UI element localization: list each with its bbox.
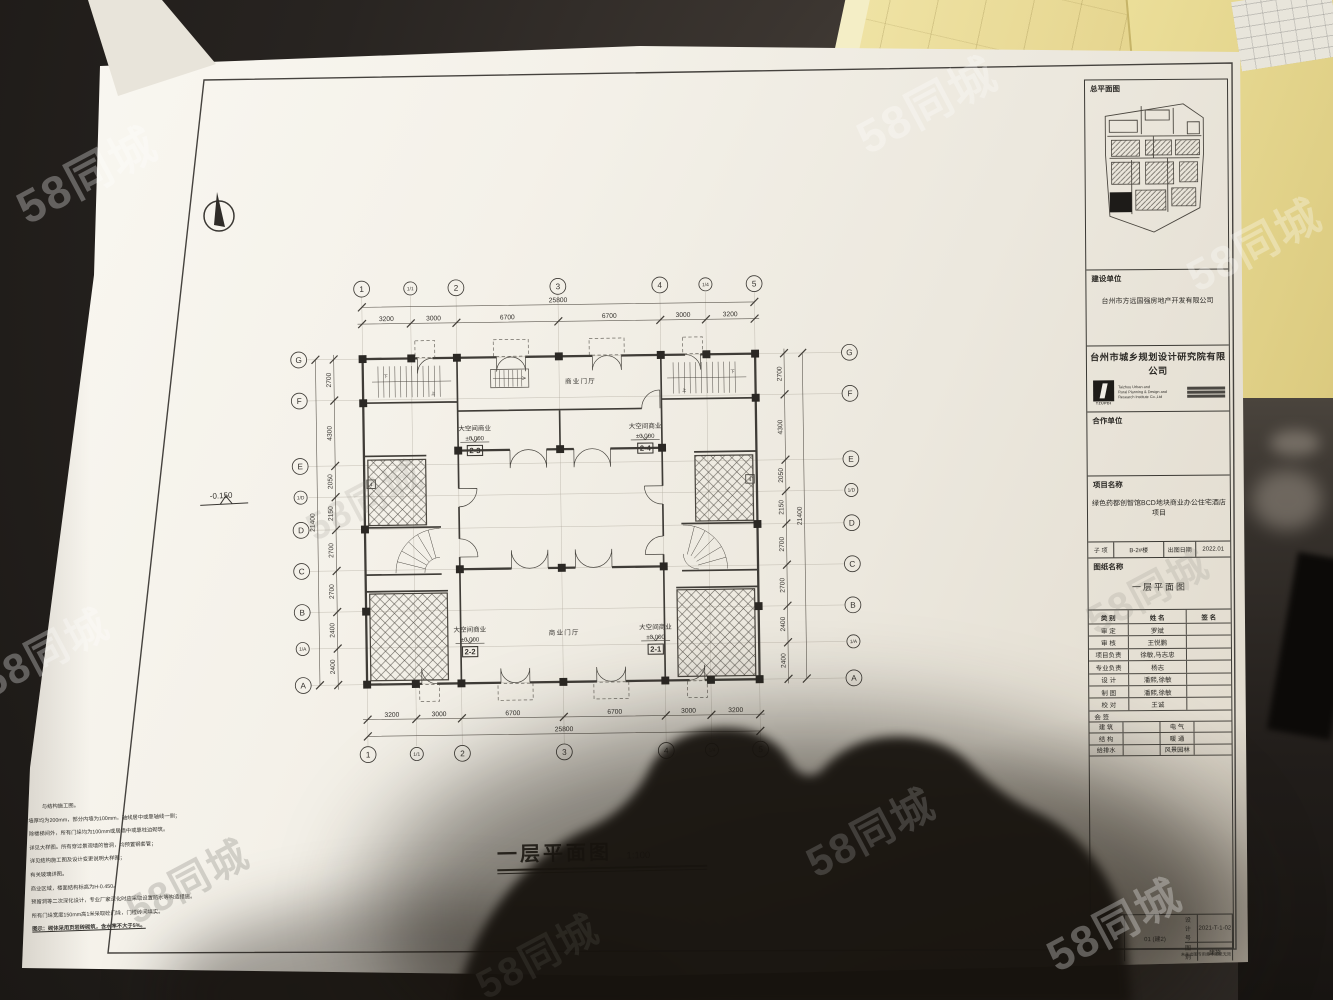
axis-label: 4 bbox=[664, 746, 669, 755]
axis-label: 1/4 bbox=[709, 748, 716, 754]
axis-label: 1 bbox=[366, 750, 371, 759]
north-arrow-icon bbox=[196, 186, 244, 240]
dim-label: 3200 bbox=[728, 707, 743, 714]
shop-label: 大空间商业 bbox=[639, 622, 672, 631]
dim-label: 3000 bbox=[426, 315, 441, 322]
axis-label: F bbox=[297, 397, 302, 406]
axis-label: 1/A bbox=[850, 639, 858, 645]
dim-label: 2700 bbox=[779, 536, 786, 551]
dim-label: 2700 bbox=[776, 366, 783, 381]
dim-label: 2050 bbox=[778, 468, 785, 483]
axis-label: 1/1 bbox=[407, 286, 414, 292]
dim-label: 3000 bbox=[681, 708, 696, 715]
dim-total: 21400 bbox=[797, 506, 804, 525]
date-value: 2022.01 bbox=[1196, 542, 1230, 557]
personnel-row: 制 图潘熙,徐敏 bbox=[1089, 685, 1231, 698]
signature bbox=[1187, 636, 1231, 648]
dim-label: 2400 bbox=[330, 659, 337, 674]
discipline: 给排水 bbox=[1090, 745, 1124, 756]
name: 潘熙,徐敏 bbox=[1129, 686, 1187, 698]
role: 校 对 bbox=[1089, 699, 1129, 711]
dim-total: 25800 bbox=[555, 726, 574, 733]
unit-number: 2-1 bbox=[650, 645, 662, 654]
hall-label: 商业门厅 bbox=[549, 628, 580, 637]
sheet-no-label-bot: 号 bbox=[1104, 938, 1110, 945]
institute-logo-text: TZUPDI bbox=[1093, 401, 1114, 405]
shop-label: 大空间商业 bbox=[453, 625, 486, 634]
project-cell: 项目名称 绿色药都创智馆BCD地块商业办公住宅酒店项目 bbox=[1088, 476, 1230, 543]
drawing-scale: 1:100 bbox=[626, 850, 650, 861]
dim-label: 6700 bbox=[607, 709, 622, 716]
dim-total: 21400 bbox=[310, 513, 317, 532]
subitem-row: 子 项 B-2#楼 出图日期 2022.01 bbox=[1088, 542, 1230, 559]
ground-elevation-marker: -0.150 bbox=[195, 486, 256, 513]
client-name: 台州市方远国强房地产开发有限公司 bbox=[1086, 296, 1228, 307]
dim-label: 3200 bbox=[379, 316, 394, 323]
client-label: 建设单位 bbox=[1086, 270, 1228, 285]
dim-labels-left: 2700 4300 2050 2150 2700 2700 2400 2400 … bbox=[308, 372, 337, 674]
name: 徐敏,马志忠 bbox=[1129, 649, 1187, 661]
floor-plan-drawing: 3200 3000 6700 6700 3000 3200 25800 3200… bbox=[278, 267, 865, 771]
ground-elevation-value: -0.150 bbox=[210, 491, 234, 501]
partner-label: 合作单位 bbox=[1087, 412, 1229, 427]
signature bbox=[1187, 648, 1231, 660]
general-notes: 与结构施工图。 墙厚均为200mm，部分内墙为100mm，轴线居中或靠轴线一侧；… bbox=[28, 794, 245, 937]
site-plan-cell: 总平面图 bbox=[1085, 80, 1228, 271]
axis-label: 4 bbox=[657, 281, 662, 290]
discipline: 建 筑 bbox=[1089, 722, 1123, 733]
drawing-sheet: 3200 3000 6700 6700 3000 3200 25800 3200… bbox=[0, 0, 1333, 1000]
header-category: 类 别 bbox=[1089, 610, 1129, 623]
name: 罗斌 bbox=[1129, 624, 1187, 636]
signature bbox=[1187, 624, 1231, 636]
axis-label: C bbox=[849, 560, 855, 569]
name: 潘熙,徐敏 bbox=[1129, 673, 1187, 685]
personnel-header: 类 别 姓 名 签 名 bbox=[1089, 610, 1231, 625]
personnel-row: 审 定罗斌 bbox=[1089, 624, 1231, 637]
dim-label: 6700 bbox=[602, 313, 617, 320]
site-plan-label: 总平面图 bbox=[1085, 80, 1227, 95]
project-label: 项目名称 bbox=[1088, 476, 1230, 491]
desk-marble-streak bbox=[1270, 430, 1320, 456]
date-label: 出图日期 bbox=[1164, 542, 1196, 557]
signature bbox=[1187, 698, 1231, 710]
name: 杨志 bbox=[1129, 661, 1187, 673]
dim-label: 3200 bbox=[384, 712, 399, 719]
header-name: 姓 名 bbox=[1129, 610, 1187, 623]
institute-logo bbox=[1093, 380, 1114, 401]
dim-label: 4300 bbox=[777, 419, 784, 434]
room-labels: 商业门厅 商业门厅 大空间商业 ±0.000 2-3 大空间商业 ±0.000 … bbox=[450, 375, 673, 657]
role: 设 计 bbox=[1089, 674, 1129, 686]
axis-label: D bbox=[298, 526, 304, 535]
dim-label: 2700 bbox=[326, 372, 333, 387]
dim-label: 6700 bbox=[505, 710, 520, 717]
personnel-row: 项目负责徐敏,马志忠 bbox=[1089, 648, 1231, 661]
design-no-value: 2021-T-1-02 bbox=[1198, 914, 1233, 942]
detail-marker-label: 4 bbox=[748, 477, 751, 483]
axis-label: B bbox=[299, 608, 305, 617]
dim-label: 4300 bbox=[327, 426, 334, 441]
axis-label: 1/D bbox=[297, 495, 305, 501]
axis-label: 1/D bbox=[848, 488, 856, 494]
desk-marble-streak bbox=[1252, 470, 1322, 530]
sheetname-label: 图纸名称 bbox=[1088, 558, 1230, 573]
hall-label: 商业门厅 bbox=[565, 376, 596, 385]
dim-label: 2700 bbox=[329, 584, 336, 599]
discipline-sign bbox=[1195, 744, 1232, 755]
institute-cell: 台州市城乡规划设计研究院有限公司 TZUPDI Taizhou Urban an… bbox=[1087, 346, 1229, 413]
discipline-row: 建 筑电 气 bbox=[1089, 721, 1231, 733]
personnel-table: 类 别 姓 名 签 名 审 定罗斌 审 核王悦鹏 项目负责徐敏,马志忠 专业负责… bbox=[1089, 610, 1232, 757]
sheetname-cell: 图纸名称 一层平面图 bbox=[1088, 558, 1230, 611]
institute-en-line: Research Institute Co.,Ltd bbox=[1118, 395, 1185, 401]
role: 审 核 bbox=[1089, 637, 1129, 649]
axis-label: 1/1 bbox=[413, 752, 420, 758]
signature bbox=[1187, 661, 1231, 673]
axis-label: D bbox=[849, 519, 855, 528]
role: 专业负责 bbox=[1089, 661, 1129, 673]
axis-label: 2 bbox=[460, 749, 465, 758]
axis-label: E bbox=[297, 462, 303, 471]
discipline: 暖 通 bbox=[1161, 733, 1195, 744]
dim-label: 2150 bbox=[328, 506, 335, 521]
personnel-row: 审 核王悦鹏 bbox=[1089, 636, 1231, 649]
partner-cell: 合作单位 bbox=[1087, 412, 1229, 477]
dim-label: 2400 bbox=[780, 616, 787, 631]
axis-label: E bbox=[848, 455, 854, 464]
discipline: 结 构 bbox=[1090, 733, 1124, 744]
role: 审 定 bbox=[1089, 624, 1129, 636]
personnel-row: 专业负责杨志 bbox=[1089, 661, 1231, 674]
stamp-note: 未盖出图专用章本图纸无效 bbox=[1091, 952, 1231, 959]
title-block: 总平面图 建设单位 bbox=[1084, 79, 1234, 950]
dim-label: 3000 bbox=[432, 711, 447, 718]
discipline-row: 给排水风景园林 bbox=[1090, 744, 1232, 756]
site-plan-thumbnail bbox=[1095, 96, 1218, 257]
axis-label: G bbox=[295, 356, 302, 365]
axis-label: F bbox=[847, 389, 852, 398]
dim-label: 2700 bbox=[328, 543, 335, 558]
unit-number: 2-3 bbox=[469, 446, 480, 455]
axis-label: 5 bbox=[758, 745, 763, 754]
stair-direction-labels: 下 上 下 上 bbox=[383, 369, 735, 397]
sheet-no-label-top: 图 bbox=[1104, 931, 1110, 938]
client-cell: 建设单位 台州市方远国强房地产开发有限公司 bbox=[1086, 270, 1229, 347]
unit-number: 2-4 bbox=[640, 444, 652, 453]
role: 项目负责 bbox=[1089, 649, 1129, 661]
stair-down-label: 下 bbox=[730, 369, 735, 375]
design-no-label: 设 计 号 bbox=[1185, 915, 1198, 943]
discipline: 电 气 bbox=[1160, 721, 1194, 732]
drawing-title-text: 一层平面图 bbox=[497, 842, 612, 866]
header-signature: 签 名 bbox=[1187, 610, 1231, 623]
discipline-row: 结 构暖 通 bbox=[1090, 733, 1232, 745]
axis-label: G bbox=[846, 348, 853, 357]
axis-label: C bbox=[299, 567, 305, 576]
drawing-title: 一层平面图 1:100 bbox=[497, 834, 708, 874]
discipline-sign bbox=[1123, 722, 1160, 733]
project-name: 绿色药都创智馆BCD地块商业办公住宅酒店项目 bbox=[1088, 498, 1230, 519]
axis-label: 2 bbox=[454, 284, 459, 293]
axis-label: 1/4 bbox=[702, 282, 709, 288]
photo-of-floor-plan-sheet: 3200 3000 6700 6700 3000 3200 25800 3200… bbox=[0, 0, 1333, 1000]
detail-marker-label: 4 bbox=[370, 482, 373, 488]
dim-label: 3000 bbox=[676, 312, 691, 319]
dim-label: 6700 bbox=[500, 314, 515, 321]
dim-label: 2150 bbox=[778, 500, 785, 515]
axis-label: A bbox=[300, 681, 306, 690]
signature bbox=[1187, 685, 1231, 697]
axis-label: 3 bbox=[556, 282, 561, 291]
personnel-row: 校 对王诚 bbox=[1089, 698, 1231, 711]
dim-label: 2400 bbox=[329, 623, 336, 638]
discipline-sign bbox=[1124, 733, 1161, 744]
role: 制 图 bbox=[1089, 686, 1129, 698]
signature bbox=[1187, 673, 1231, 685]
discipline-sign bbox=[1195, 733, 1232, 744]
dim-total: 25800 bbox=[549, 297, 568, 304]
sheet-number-block: 设 计 号 2021-T-1-02 图 号 01 (建2) 图 别 建施 bbox=[1091, 913, 1233, 948]
discipline-sign bbox=[1194, 721, 1231, 732]
dim-labels-right: 2700 4300 2050 2150 2700 2700 2400 2400 … bbox=[776, 366, 805, 668]
axis-label: B bbox=[850, 601, 856, 610]
personnel-row: 设 计潘熙,徐敏 bbox=[1089, 673, 1231, 686]
stair-up-label: 上 bbox=[431, 390, 436, 396]
axis-label: 3 bbox=[562, 748, 567, 757]
unit-number: 2-2 bbox=[465, 647, 476, 656]
dim-label: 2700 bbox=[779, 578, 786, 593]
discipline-sign bbox=[1124, 745, 1161, 756]
axis-label: A bbox=[851, 674, 857, 683]
subitem-value: B-2#楼 bbox=[1114, 542, 1164, 557]
subitem-label: 子 项 bbox=[1088, 542, 1114, 557]
stair-down-label: 下 bbox=[383, 374, 388, 380]
axis-label: 1 bbox=[359, 285, 364, 294]
shop-label: 大空间商业 bbox=[629, 421, 662, 430]
axis-label: 1/A bbox=[299, 647, 307, 653]
name: 王诚 bbox=[1129, 698, 1187, 710]
dim-label: 3200 bbox=[723, 311, 738, 318]
institute-name-en: Taizhou Urban and Rural Planning & Desig… bbox=[1118, 385, 1185, 401]
axis-label: 5 bbox=[752, 279, 757, 288]
empty-cell bbox=[1090, 755, 1233, 914]
institute-logo-row: TZUPDI Taizhou Urban and Rural Planning … bbox=[1087, 377, 1229, 408]
shop-label: 大空间商业 bbox=[458, 423, 491, 432]
dim-label: 2400 bbox=[780, 653, 787, 668]
name: 王悦鹏 bbox=[1129, 636, 1187, 648]
institute-name: 台州市城乡规划设计研究院有限公司 bbox=[1087, 349, 1229, 378]
dim-label: 2050 bbox=[327, 474, 334, 489]
discipline: 风景园林 bbox=[1161, 744, 1195, 755]
institute-contact-smudge bbox=[1187, 385, 1225, 399]
sheetname-value: 一层平面图 bbox=[1088, 580, 1230, 594]
